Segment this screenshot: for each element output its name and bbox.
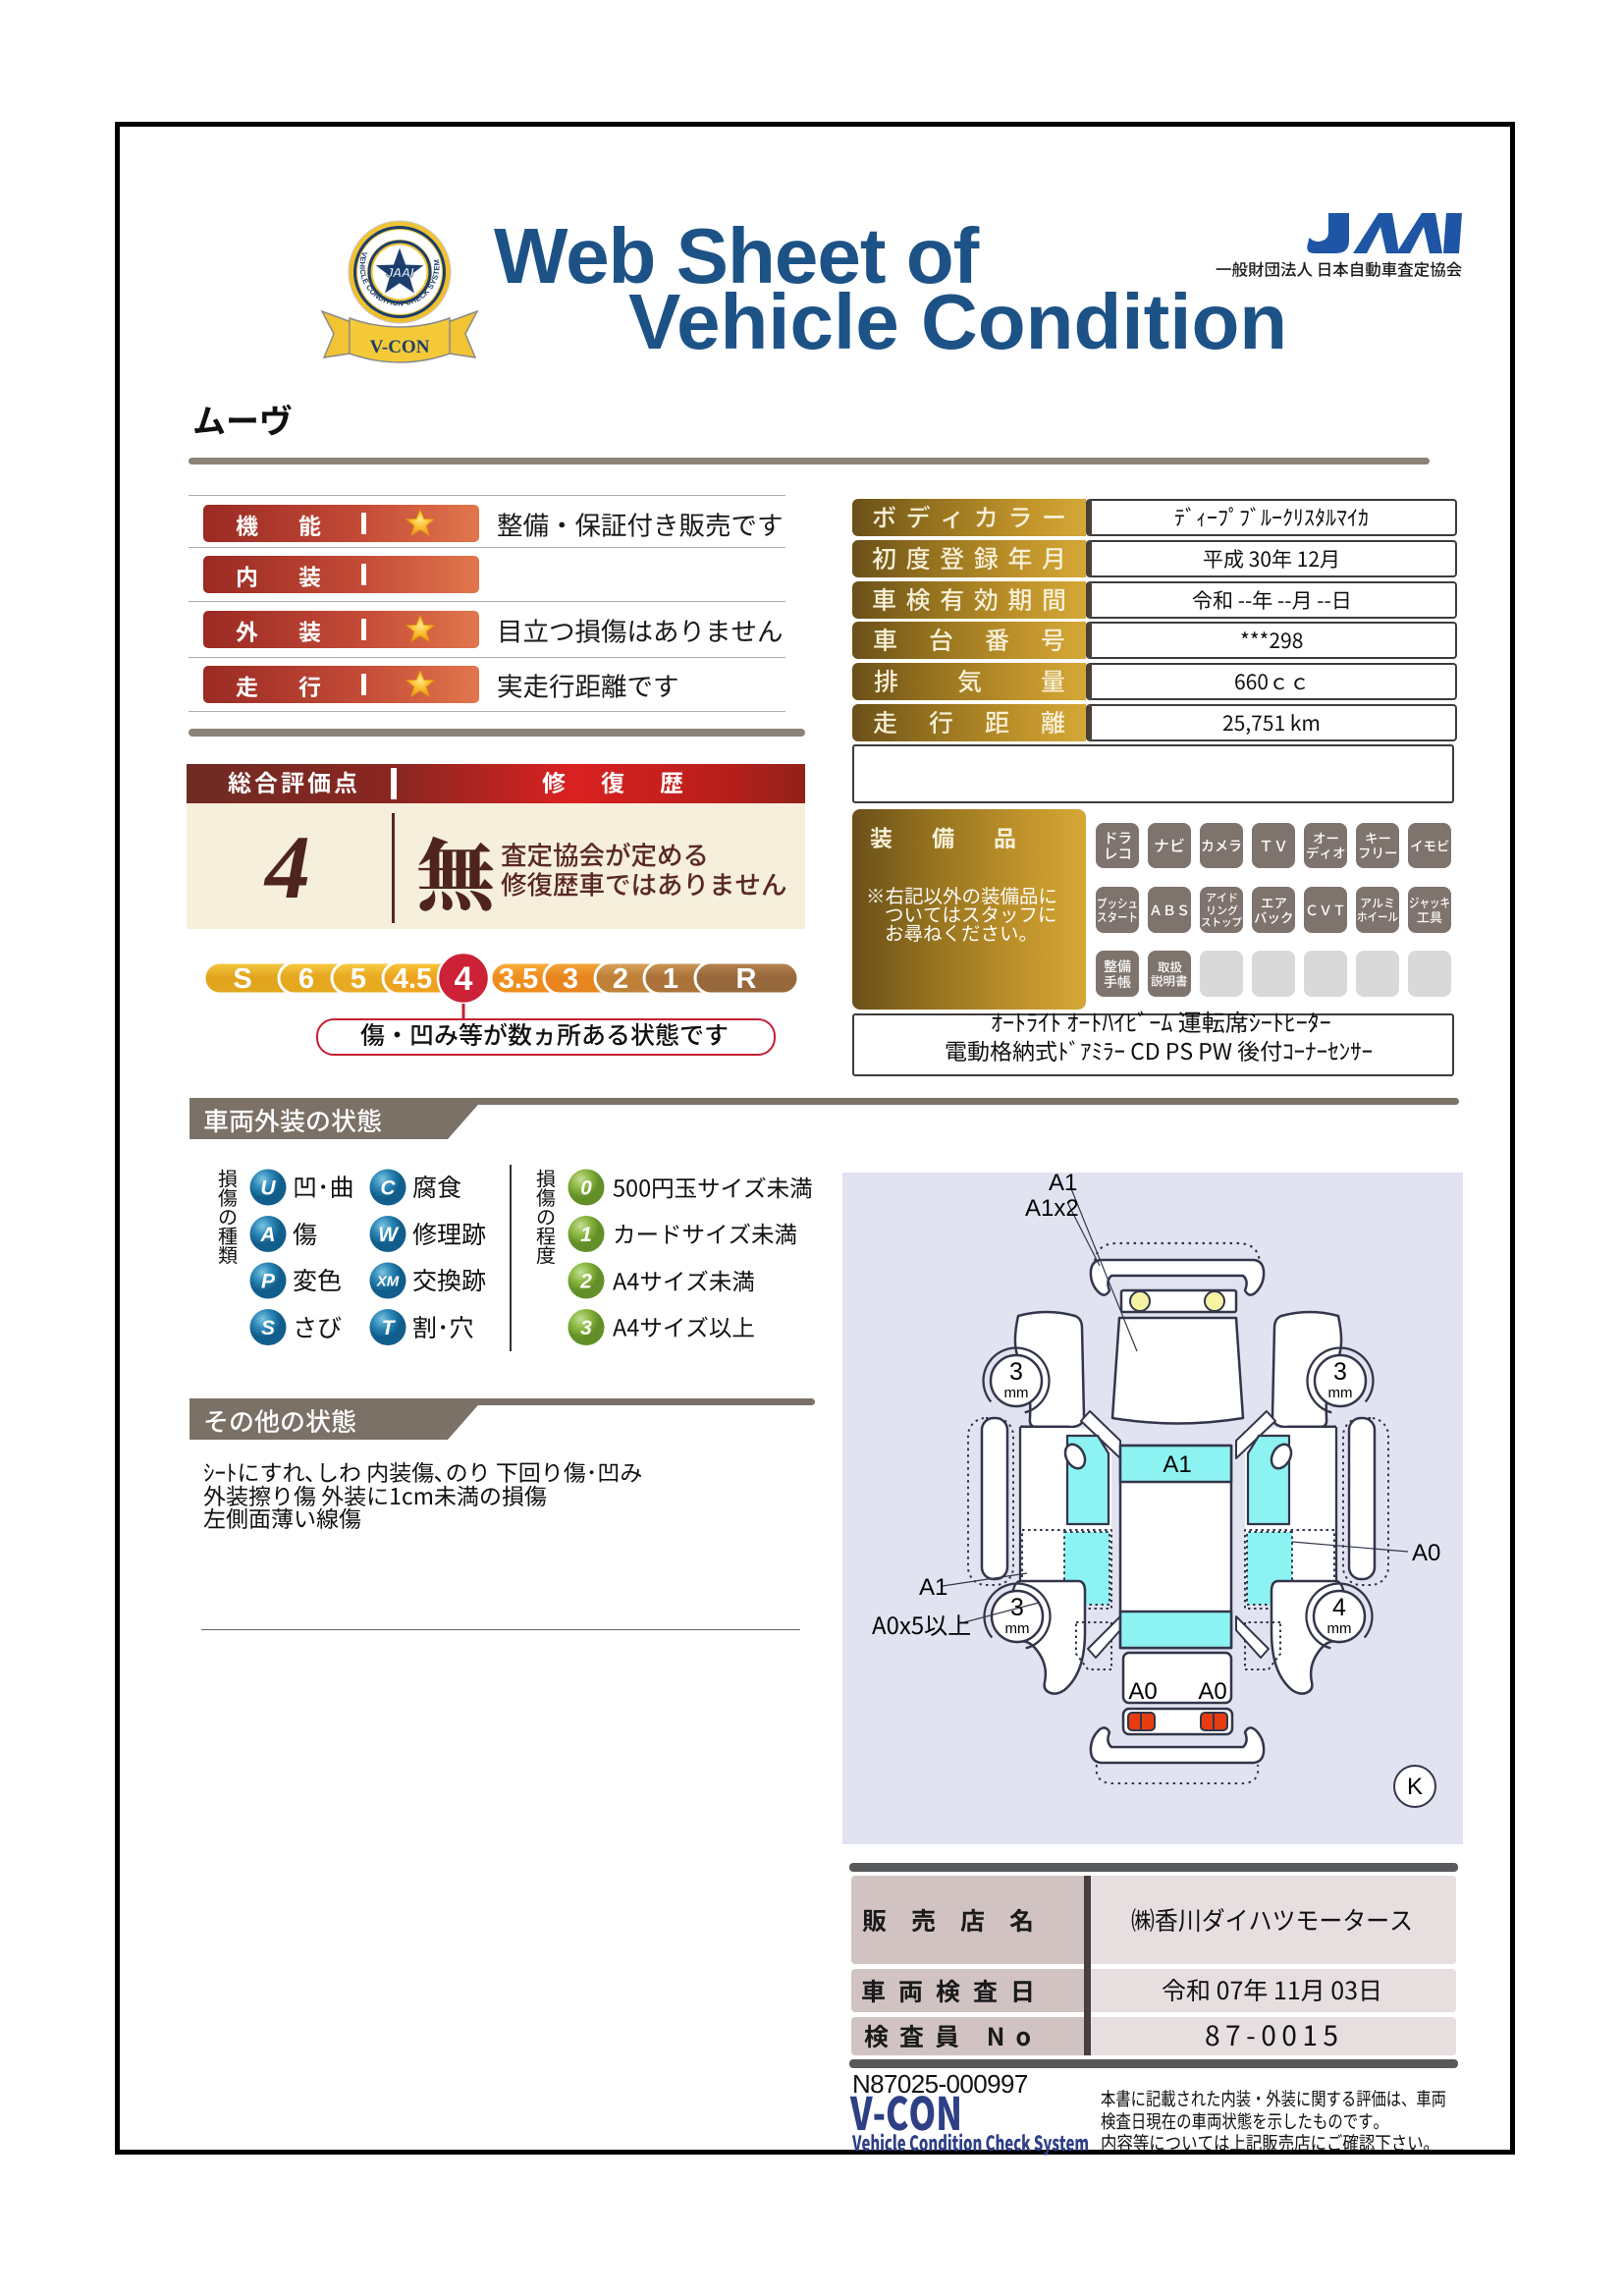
svg-text:mm: mm bbox=[1004, 1385, 1029, 1401]
svg-text:1: 1 bbox=[580, 1224, 592, 1246]
svg-text:C: C bbox=[380, 1177, 396, 1200]
svg-text:4.5: 4.5 bbox=[393, 963, 432, 995]
svg-text:0: 0 bbox=[580, 1177, 592, 1200]
svg-text:4: 4 bbox=[455, 960, 473, 998]
svg-text:mm: mm bbox=[1005, 1620, 1030, 1637]
svg-text:XM: XM bbox=[376, 1273, 400, 1289]
svg-text:A0: A0 bbox=[1412, 1540, 1440, 1566]
svg-text:R: R bbox=[736, 963, 757, 995]
svg-text:3.5: 3.5 bbox=[499, 963, 538, 995]
svg-text:A0: A0 bbox=[1198, 1678, 1226, 1705]
svg-text:3: 3 bbox=[563, 963, 578, 995]
svg-text:2: 2 bbox=[579, 1271, 592, 1293]
svg-text:1: 1 bbox=[663, 963, 678, 995]
svg-text:mm: mm bbox=[1327, 1620, 1352, 1637]
svg-text:3: 3 bbox=[1333, 1358, 1347, 1386]
svg-text:S: S bbox=[233, 963, 251, 995]
svg-text:A1: A1 bbox=[1049, 1173, 1077, 1196]
svg-text:A1: A1 bbox=[919, 1574, 947, 1601]
svg-text:W: W bbox=[378, 1224, 400, 1246]
svg-text:JAAI: JAAI bbox=[386, 265, 414, 280]
svg-text:A: A bbox=[259, 1224, 275, 1246]
svg-text:T: T bbox=[382, 1317, 397, 1339]
svg-text:A0: A0 bbox=[1128, 1678, 1157, 1705]
svg-text:U: U bbox=[260, 1177, 276, 1200]
svg-text:mm: mm bbox=[1328, 1385, 1353, 1401]
svg-text:4: 4 bbox=[1332, 1594, 1346, 1621]
svg-text:6: 6 bbox=[298, 963, 314, 995]
svg-text:A1x2: A1x2 bbox=[1025, 1195, 1079, 1222]
svg-text:A1: A1 bbox=[1163, 1451, 1191, 1478]
svg-text:V-CON: V-CON bbox=[370, 337, 430, 357]
svg-text:3: 3 bbox=[1010, 1594, 1024, 1621]
svg-text:K: K bbox=[1407, 1774, 1423, 1800]
svg-text:5: 5 bbox=[351, 963, 366, 995]
svg-text:S: S bbox=[261, 1317, 275, 1339]
svg-text:3: 3 bbox=[1009, 1358, 1023, 1386]
svg-text:3: 3 bbox=[580, 1317, 592, 1339]
svg-text:P: P bbox=[261, 1271, 276, 1293]
svg-text:2: 2 bbox=[613, 963, 628, 995]
